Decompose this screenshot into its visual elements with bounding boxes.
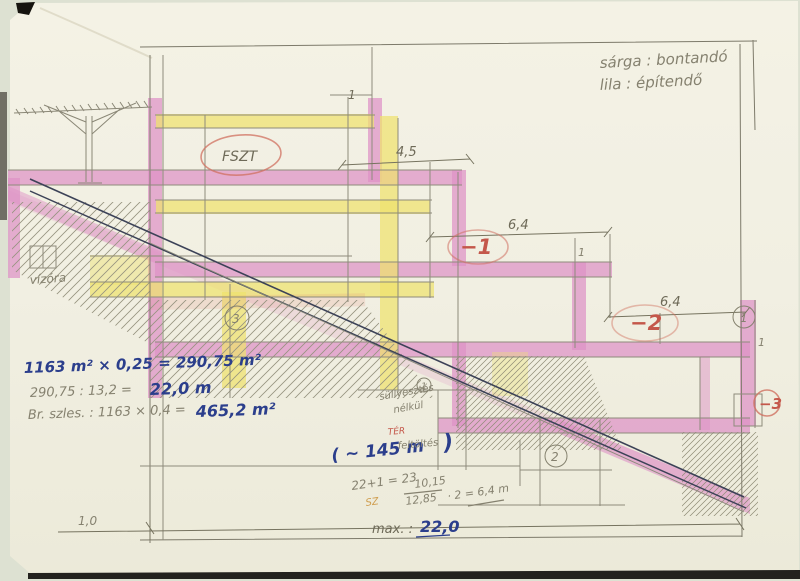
- pink-column-mid-top: [368, 98, 382, 182]
- level-minus1-label: −1: [460, 235, 492, 259]
- dim-64a-label: 6,4: [508, 218, 529, 233]
- dim-45-label: 4,5: [396, 145, 417, 160]
- scan-left-edge: [0, 92, 7, 220]
- pink-column-right-upper: [572, 262, 586, 350]
- architectural-section-sketch: sárga : bontandó lila : építendő FSZT 4,…: [0, 0, 800, 581]
- scale-note: 1,0: [78, 514, 97, 528]
- yellow-beam-top: [156, 114, 374, 128]
- dim-one-mid: 1: [578, 246, 585, 259]
- dim-one-right: 1: [758, 336, 765, 349]
- max-label: max. :: [372, 522, 413, 537]
- calc-line2-rhs: 22,0 m: [149, 378, 211, 399]
- max-value: 22,0: [420, 517, 459, 536]
- dim-64b-label: 6,4: [660, 295, 681, 310]
- circle3-label: 3: [232, 312, 240, 326]
- circle1-right-label: 1: [740, 311, 748, 325]
- label-fszt: FSZT: [222, 149, 259, 165]
- level-minus2-label: −2: [630, 311, 662, 335]
- level-minus3-label: −3: [759, 395, 782, 413]
- scanned-drawing-page: sárga : bontandó lila : építendő FSZT 4,…: [0, 0, 800, 581]
- calc-line3-rhs: 465,2 m²: [194, 399, 275, 421]
- dim-one-top: 1: [348, 88, 356, 102]
- circle2-label: 2: [551, 450, 559, 464]
- note-vizora: vízóra: [29, 270, 66, 287]
